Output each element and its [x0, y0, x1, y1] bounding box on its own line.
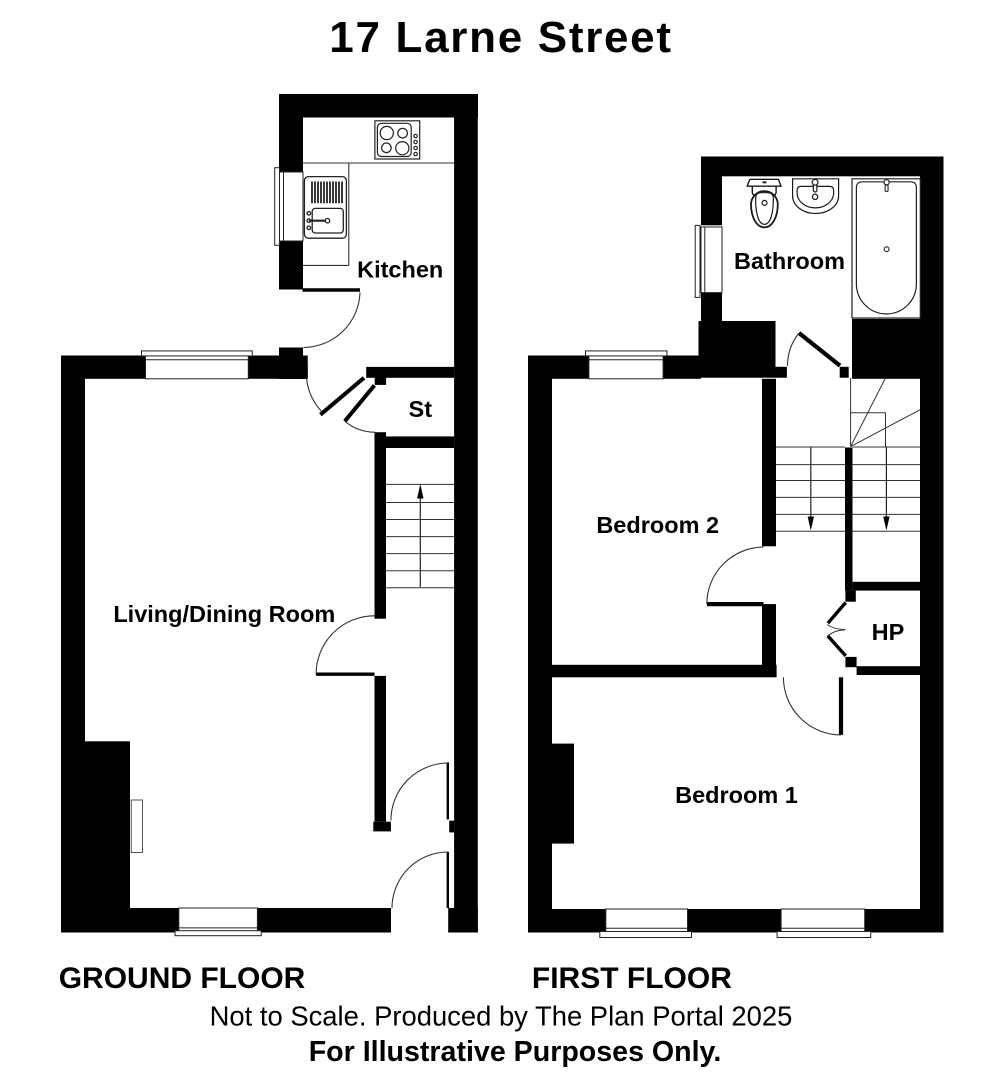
svg-text:Bedroom 1: Bedroom 1 [675, 782, 798, 808]
svg-text:GROUND FLOOR: GROUND FLOOR [59, 962, 306, 995]
svg-text:For Illustrative Purposes Only: For Illustrative Purposes Only. [309, 1036, 722, 1068]
svg-text:Bathroom: Bathroom [734, 248, 845, 274]
svg-text:Kitchen: Kitchen [357, 256, 443, 282]
svg-text:Not to Scale. Produced by The: Not to Scale. Produced by The Plan Porta… [210, 1000, 793, 1031]
svg-text:17 Larne Street: 17 Larne Street [329, 13, 672, 62]
svg-text:St: St [409, 396, 433, 422]
svg-text:FIRST FLOOR: FIRST FLOOR [532, 962, 732, 995]
svg-text:Living/Dining Room: Living/Dining Room [113, 601, 335, 627]
svg-text:Bedroom 2: Bedroom 2 [596, 512, 719, 538]
svg-text:HP: HP [872, 619, 905, 645]
